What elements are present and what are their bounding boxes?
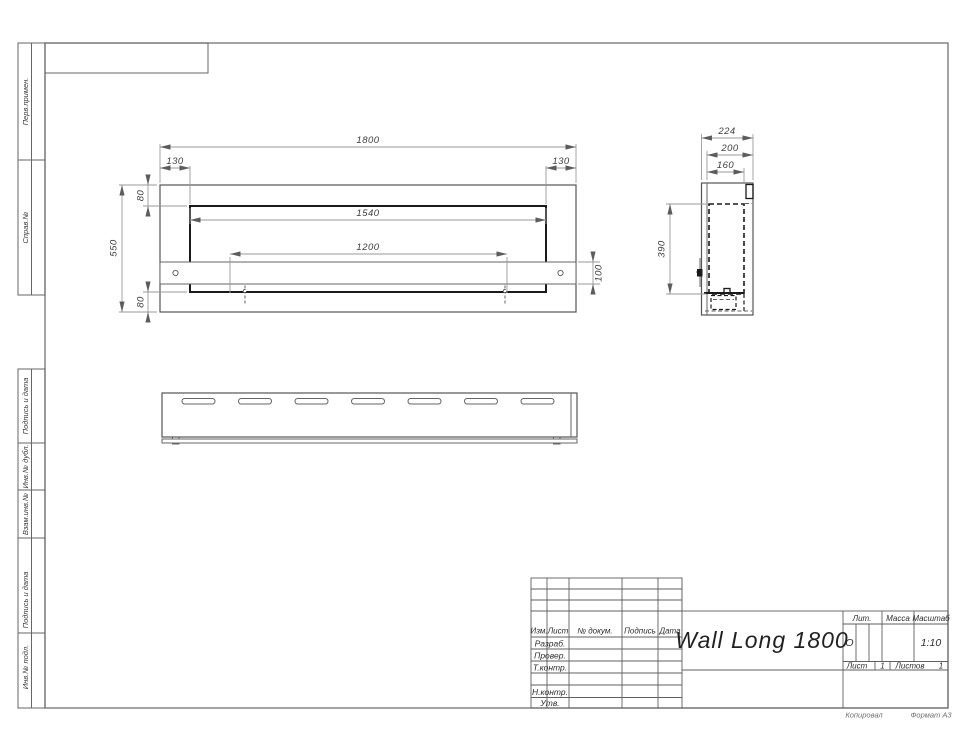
row-prover: Провер. bbox=[534, 651, 566, 661]
dim-160: 160 bbox=[717, 160, 735, 171]
top-left-designation-box bbox=[45, 43, 208, 73]
dim-80-top: 80 bbox=[136, 190, 147, 202]
sheets-value: 1 bbox=[939, 662, 943, 671]
drawing-sheet: Перв.примен. Справ.№ Подпись и дата Инв.… bbox=[0, 0, 970, 749]
row-tkontr: Т.контр. bbox=[533, 663, 567, 673]
shelf-hole-left bbox=[173, 270, 178, 275]
dim-80-bottom: 80 bbox=[136, 296, 147, 308]
col-list: Лист bbox=[547, 627, 569, 636]
mass-label: Масса bbox=[886, 614, 910, 623]
burner-box bbox=[711, 296, 736, 310]
dim-1200: 1200 bbox=[356, 242, 379, 253]
sheet-value: 1 bbox=[880, 662, 884, 671]
margin-label-perv-primen: Перв.примен. bbox=[21, 78, 30, 126]
margin-label-sprav-no: Справ.№ bbox=[21, 211, 30, 243]
scale-label: Масштаб bbox=[912, 614, 950, 623]
row-nkontr: Н.контр. bbox=[532, 687, 568, 697]
title-block: Изм. Лист № докум. Подпись Дата Разраб. … bbox=[530, 578, 950, 708]
scale-value: 1:10 bbox=[921, 637, 942, 649]
copy-note: Копировал bbox=[845, 711, 883, 720]
lit-label: Лит. bbox=[852, 614, 872, 623]
wall-strip bbox=[162, 439, 577, 443]
dim-130-left: 130 bbox=[166, 156, 184, 167]
shelf-hole-right bbox=[558, 270, 563, 275]
dim-390: 390 bbox=[657, 240, 668, 258]
front-view: 1800 130 130 550 80 80 1540 1200 bbox=[109, 135, 605, 321]
lit-value: О bbox=[845, 637, 853, 649]
drawing-canvas: Перв.примен. Справ.№ Подпись и дата Инв.… bbox=[0, 0, 970, 749]
hidden-body-outline bbox=[709, 204, 744, 294]
margin-label-inv-podl: Инв.№ подл. bbox=[21, 645, 30, 689]
row-utv: Утв. bbox=[539, 698, 559, 708]
margin-label-inv-dubl: Инв.№ дубл. bbox=[21, 444, 30, 488]
side-view: 224 200 160 390 bbox=[657, 126, 754, 315]
shelf-knob bbox=[697, 269, 703, 277]
margin-boxes: Перв.примен. Справ.№ Подпись и дата Инв.… bbox=[18, 43, 45, 708]
dim-100: 100 bbox=[594, 264, 605, 282]
dim-550: 550 bbox=[109, 239, 120, 257]
burner-shelf bbox=[160, 262, 576, 284]
mounting-bracket bbox=[746, 185, 753, 199]
col-izm: Изм. bbox=[530, 627, 547, 636]
dim-224: 224 bbox=[717, 126, 735, 137]
sheet-label: Лист bbox=[846, 662, 868, 671]
margin-label-podpis-data-2: Подпись и дата bbox=[21, 572, 30, 629]
sheet-frame bbox=[45, 43, 948, 708]
row-razrab: Разраб. bbox=[535, 639, 566, 649]
margin-label-vzam-inv: Взам.инв.№ bbox=[21, 493, 30, 535]
col-doc: № докум. bbox=[577, 627, 612, 636]
bottom-view bbox=[162, 393, 577, 444]
sheets-label: Листов bbox=[894, 662, 924, 671]
col-sign: Подпись bbox=[624, 627, 656, 636]
dim-200: 200 bbox=[720, 143, 739, 154]
document-title: Wall Long 1800 bbox=[675, 627, 848, 653]
dim-130-right: 130 bbox=[552, 156, 570, 167]
dim-1800: 1800 bbox=[356, 135, 379, 146]
dim-1540: 1540 bbox=[356, 208, 379, 219]
margin-label-podpis-data-1: Подпись и дата bbox=[21, 378, 30, 435]
format-note: Формат А3 bbox=[910, 711, 952, 720]
